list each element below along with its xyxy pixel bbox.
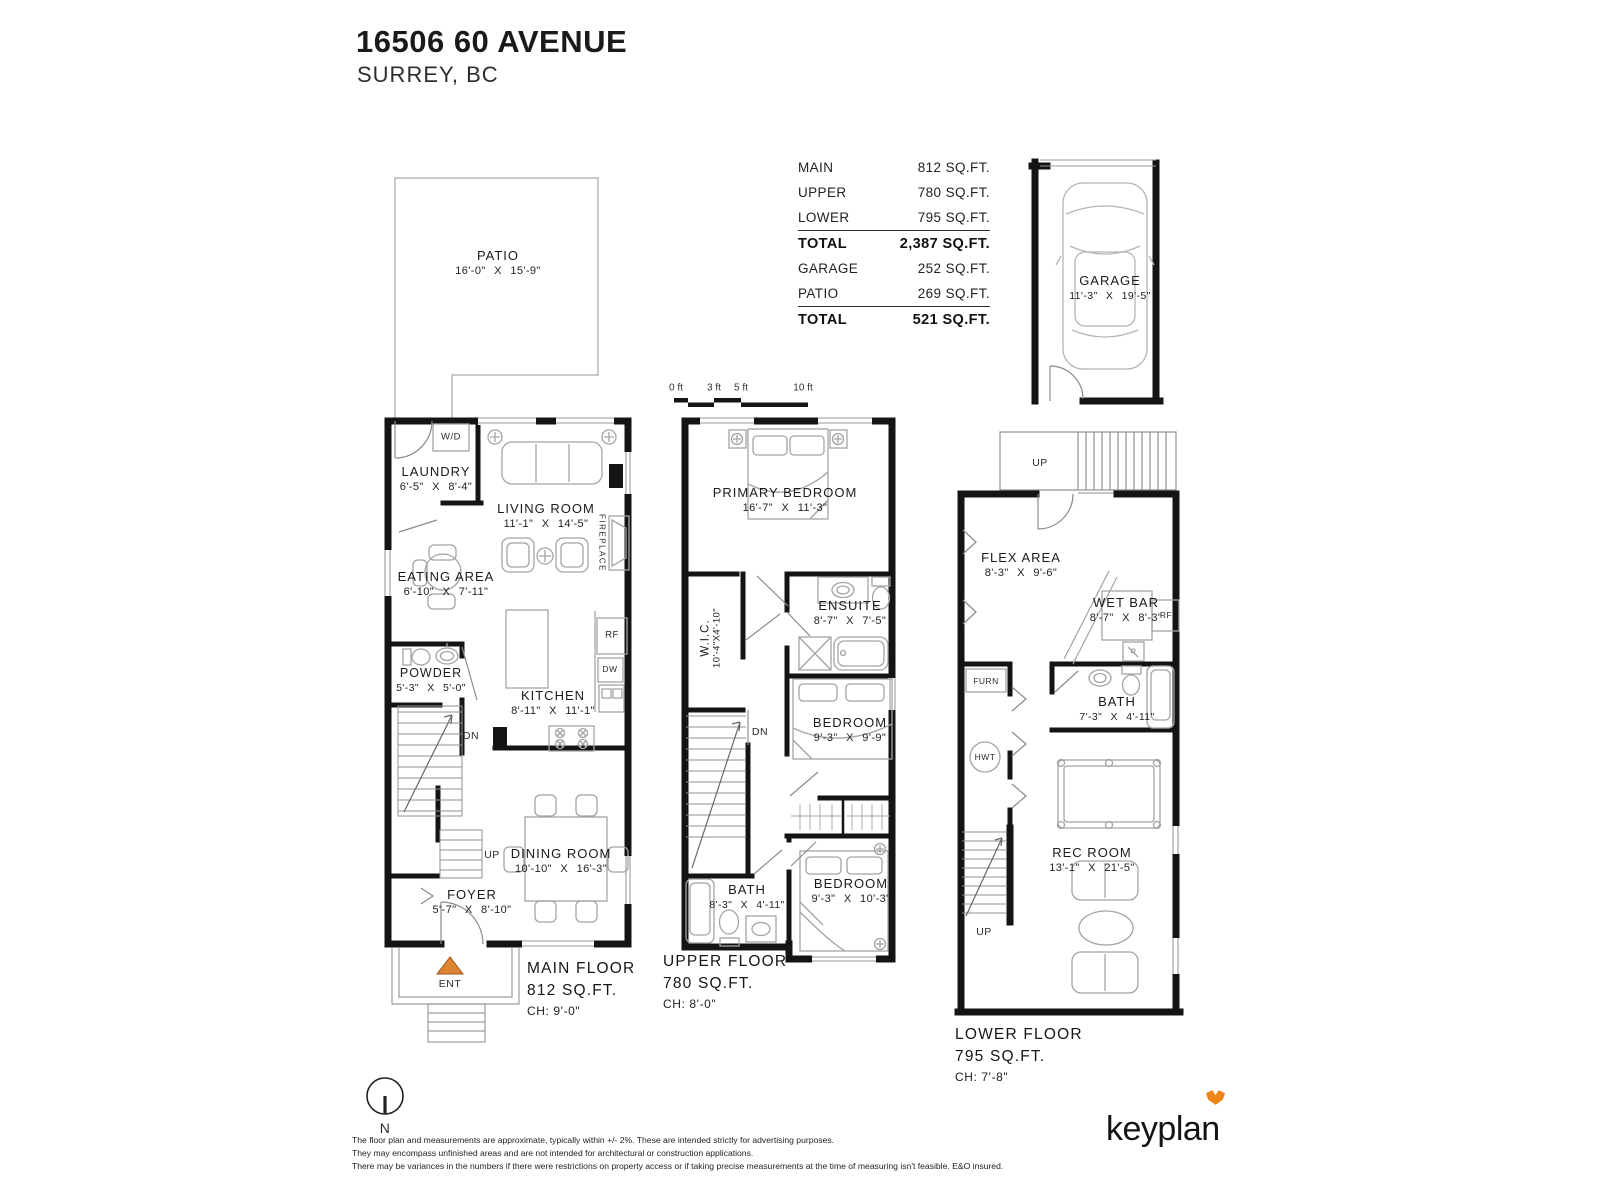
stairs-down-label-upper: DN (752, 726, 768, 738)
north-compass-icon (367, 1078, 403, 1114)
disclaimer-line-1: The floor plan and measurements are appr… (352, 1134, 1003, 1147)
room-label-bath-upper: BATH 8'-3" X 4'-11" (709, 882, 784, 911)
scale-label-10: 10 ft (793, 383, 812, 394)
fireplace-label: FIREPLACE (598, 514, 607, 572)
room-label-bedroom-2: BEDROOM 9'-3" X 10'-3" (812, 876, 891, 905)
disclaimer-text: The floor plan and measurements are appr… (352, 1134, 1003, 1173)
scale-bar-graphic (674, 398, 808, 407)
area-row-total-other: TOTAL521 SQ.FT. (798, 306, 990, 332)
room-label-powder: POWDER 5'-3" X 5'-0" (396, 666, 466, 694)
area-row-patio: PATIO269 SQ.FT. (798, 281, 990, 306)
stairs-up-label-lower-top: UP (1032, 457, 1048, 469)
fox-icon (1206, 1089, 1225, 1106)
area-row-total-living: TOTAL2,387 SQ.FT. (798, 230, 990, 256)
fridge-label-lower: RF (1160, 610, 1172, 620)
scale-label-5: 5 ft (734, 383, 748, 394)
room-label-wet-bar: WET BAR 8'-7" X 8'-3" (1090, 595, 1162, 624)
room-label-kitchen: KITCHEN 8'-11" X 11'-1" (511, 688, 595, 717)
area-row-main: MAIN812 SQ.FT. (798, 155, 990, 180)
patio-outline (395, 178, 598, 418)
disclaimer-line-3: There may be variances in the numbers if… (352, 1160, 1003, 1173)
keyplan-logo-text: keyplan (1106, 1110, 1220, 1149)
floorplan-sheet: 16506 60 AVENUE SURREY, BC MAIN812 SQ.FT… (0, 0, 1600, 1200)
stairs-up-label-main: UP (484, 849, 500, 861)
area-row-garage: GARAGE252 SQ.FT. (798, 256, 990, 281)
hot-water-tank-label: HWT (975, 752, 996, 762)
scale-label-0: 0 ft (669, 383, 683, 394)
dishwasher-label: DW (602, 664, 617, 674)
area-summary-table: MAIN812 SQ.FT. UPPER780 SQ.FT. LOWER795 … (798, 155, 990, 332)
room-label-living: LIVING ROOM 11'-1" X 14'-5" (497, 501, 595, 530)
furnace-label: FURN (973, 676, 999, 686)
room-label-laundry: LAUNDRY 6'-5" X 8'-4" (400, 464, 472, 493)
room-label-eating: EATING AREA 6'-10" X 7'-11" (398, 569, 495, 598)
room-label-primary-bedroom: PRIMARY BEDROOM 16'-7" X 11'-3" (713, 485, 858, 514)
floor-label-lower: LOWER FLOOR 795 SQ.FT. CH: 7'-8" (955, 1026, 1083, 1084)
room-label-dining: DINING ROOM 10'-10" X 16'-3" (511, 846, 612, 875)
disclaimer-line-2: They may encompass unfinished areas and … (352, 1147, 1003, 1160)
fridge-label-main: RF (605, 630, 619, 641)
area-row-lower: LOWER795 SQ.FT. (798, 205, 990, 230)
room-label-bath-lower: BATH 7'-3" X 4'-11" (1079, 694, 1154, 723)
stairs-up-label-lower-bottom: UP (976, 926, 992, 938)
room-label-bedroom-1: BEDROOM 9'-3" X 9'-9" (813, 715, 887, 744)
scale-label-3: 3 ft (707, 383, 721, 394)
room-label-ensuite: ENSUITE 8'-7" X 7'-5" (814, 598, 886, 627)
room-label-flex-area: FLEX AREA 8'-3" X 9'-6" (981, 550, 1061, 579)
room-label-patio: PATIO 16'-0" X 15'-9" (455, 248, 541, 277)
floor-label-main: MAIN FLOOR 812 SQ.FT. CH: 9'-0" (527, 960, 635, 1018)
room-label-garage: GARAGE 11'-3" X 19'-5" (1069, 273, 1151, 302)
entry-arrow-icon (437, 957, 463, 974)
page-title: 16506 60 AVENUE (356, 24, 627, 60)
entry-label: ENT (439, 978, 462, 990)
area-row-upper: UPPER780 SQ.FT. (798, 180, 990, 205)
floor-label-upper: UPPER FLOOR 780 SQ.FT. CH: 8'-0" (663, 953, 787, 1011)
page-subtitle: SURREY, BC (357, 62, 499, 88)
stairs-down-label-main: DN (463, 730, 479, 742)
room-label-foyer: FOYER 5'-7" X 8'-10" (433, 887, 512, 916)
room-label-rec-room: REC ROOM 13'-1" X 21'-5" (1049, 845, 1135, 874)
washer-dryer-label: W/D (441, 432, 461, 443)
room-label-wic: W.I.C. 10'-4"X4'-10" (700, 608, 723, 668)
